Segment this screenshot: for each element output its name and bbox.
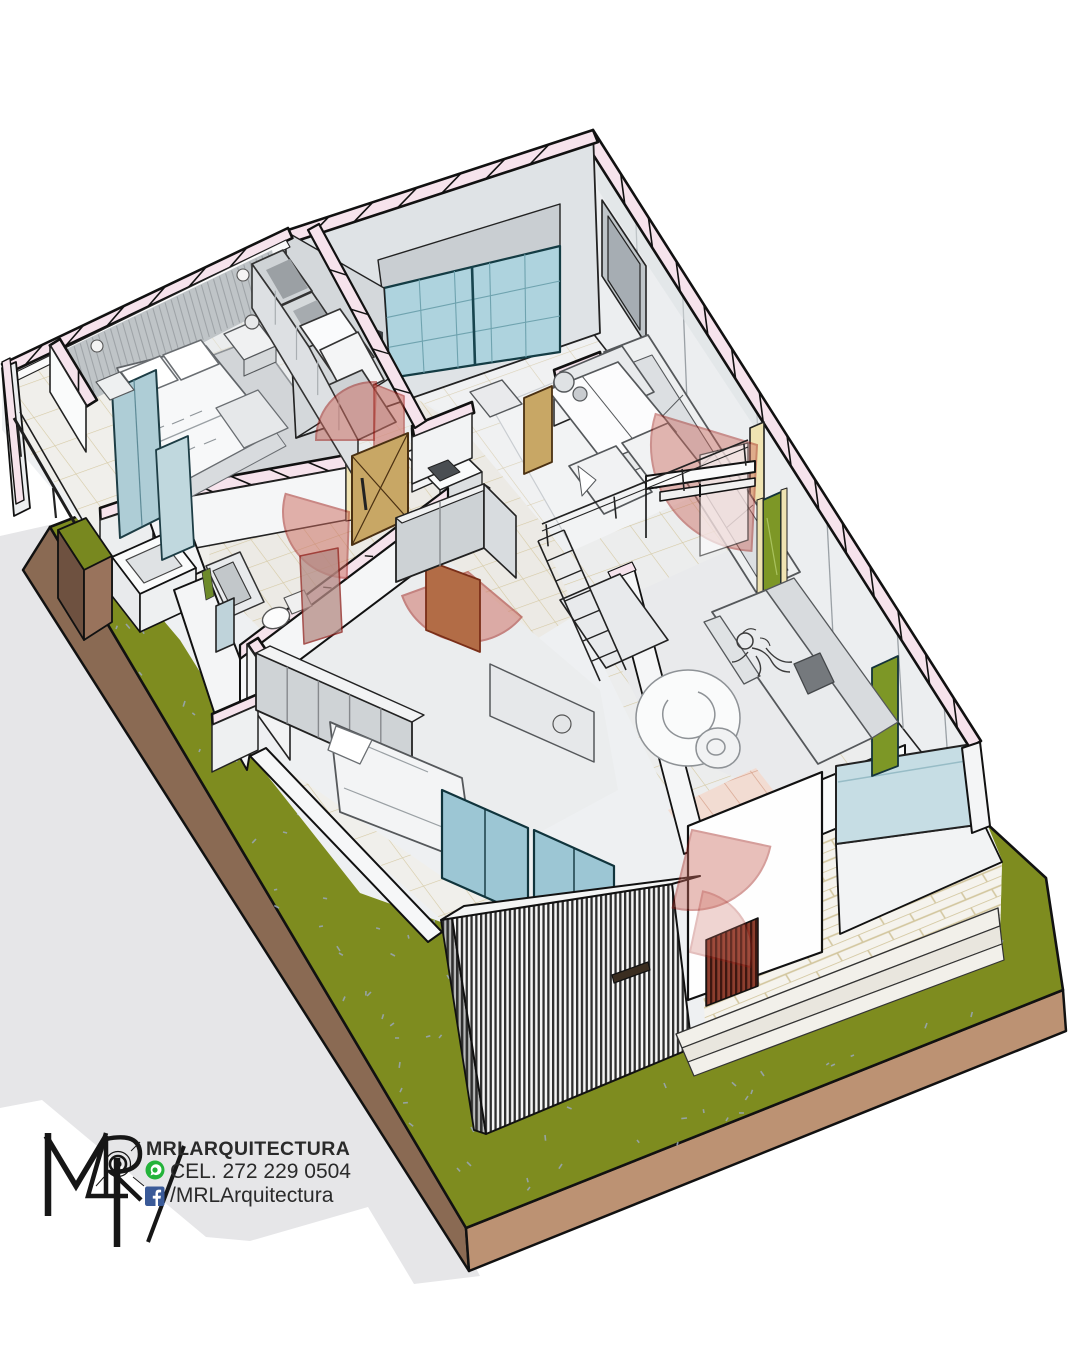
svg-text:MRLARQUITECTURA: MRLARQUITECTURA [146, 1138, 350, 1160]
svg-text:CEL. 272 229 0504: CEL. 272 229 0504 [170, 1160, 351, 1183]
svg-text:/MRLArquitectura: /MRLArquitectura [170, 1184, 334, 1207]
